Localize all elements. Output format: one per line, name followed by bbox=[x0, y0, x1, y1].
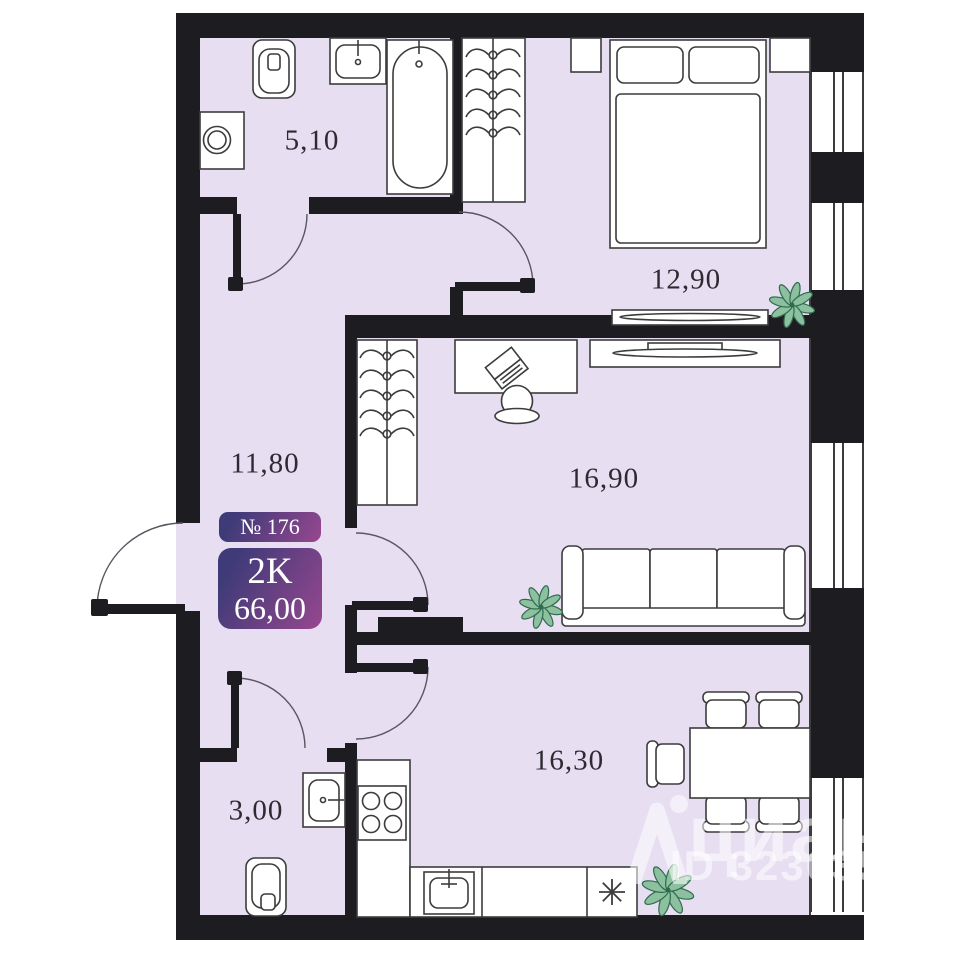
apartment-number-badge: № 176 bbox=[219, 512, 321, 542]
wall bbox=[811, 290, 864, 443]
window-glass-line bbox=[833, 778, 835, 912]
room-area-bedroom: 12,90 bbox=[651, 264, 721, 297]
wall bbox=[176, 197, 237, 214]
window-glass-line bbox=[833, 203, 835, 290]
room-area-hallway: 11,80 bbox=[230, 448, 299, 481]
entrance-threshold bbox=[176, 523, 199, 611]
wall bbox=[176, 13, 864, 38]
wall bbox=[176, 748, 237, 762]
window-glass-line bbox=[833, 72, 835, 152]
wall bbox=[309, 197, 455, 214]
floor-plan: 5,10 12,90 11,80 16,90 3,00 16,30 № 176 … bbox=[0, 0, 960, 960]
wall bbox=[345, 632, 811, 645]
room-area-wc: 3,00 bbox=[229, 795, 284, 828]
room-area-bathroom: 5,10 bbox=[285, 125, 340, 158]
wall bbox=[450, 38, 463, 214]
window-glass-line bbox=[842, 72, 844, 152]
window-glass-line bbox=[842, 443, 844, 588]
window bbox=[811, 443, 864, 588]
wall bbox=[176, 13, 200, 523]
entrance-door bbox=[91, 523, 185, 616]
window-glass-line bbox=[833, 443, 835, 588]
apartment-info-badge: 2K 66,00 bbox=[218, 548, 322, 629]
window-glass-line bbox=[842, 778, 844, 912]
wall bbox=[345, 743, 357, 917]
room-area-kitchen: 16,30 bbox=[534, 745, 604, 778]
room-area-living-room: 16,90 bbox=[569, 463, 639, 496]
apartment-type: 2K bbox=[218, 553, 322, 591]
wall bbox=[811, 13, 864, 72]
wall bbox=[176, 611, 200, 940]
wall bbox=[378, 617, 463, 632]
apartment-total-area: 66,00 bbox=[218, 591, 322, 625]
window-glass-line bbox=[842, 203, 844, 290]
apartment-number: № 176 bbox=[240, 514, 300, 539]
wall bbox=[811, 588, 864, 778]
window bbox=[811, 203, 864, 290]
wall bbox=[345, 338, 357, 528]
wall bbox=[176, 915, 864, 940]
wall bbox=[811, 152, 864, 203]
window bbox=[811, 72, 864, 152]
window bbox=[811, 778, 864, 912]
wall bbox=[345, 315, 811, 338]
wall bbox=[327, 748, 357, 762]
